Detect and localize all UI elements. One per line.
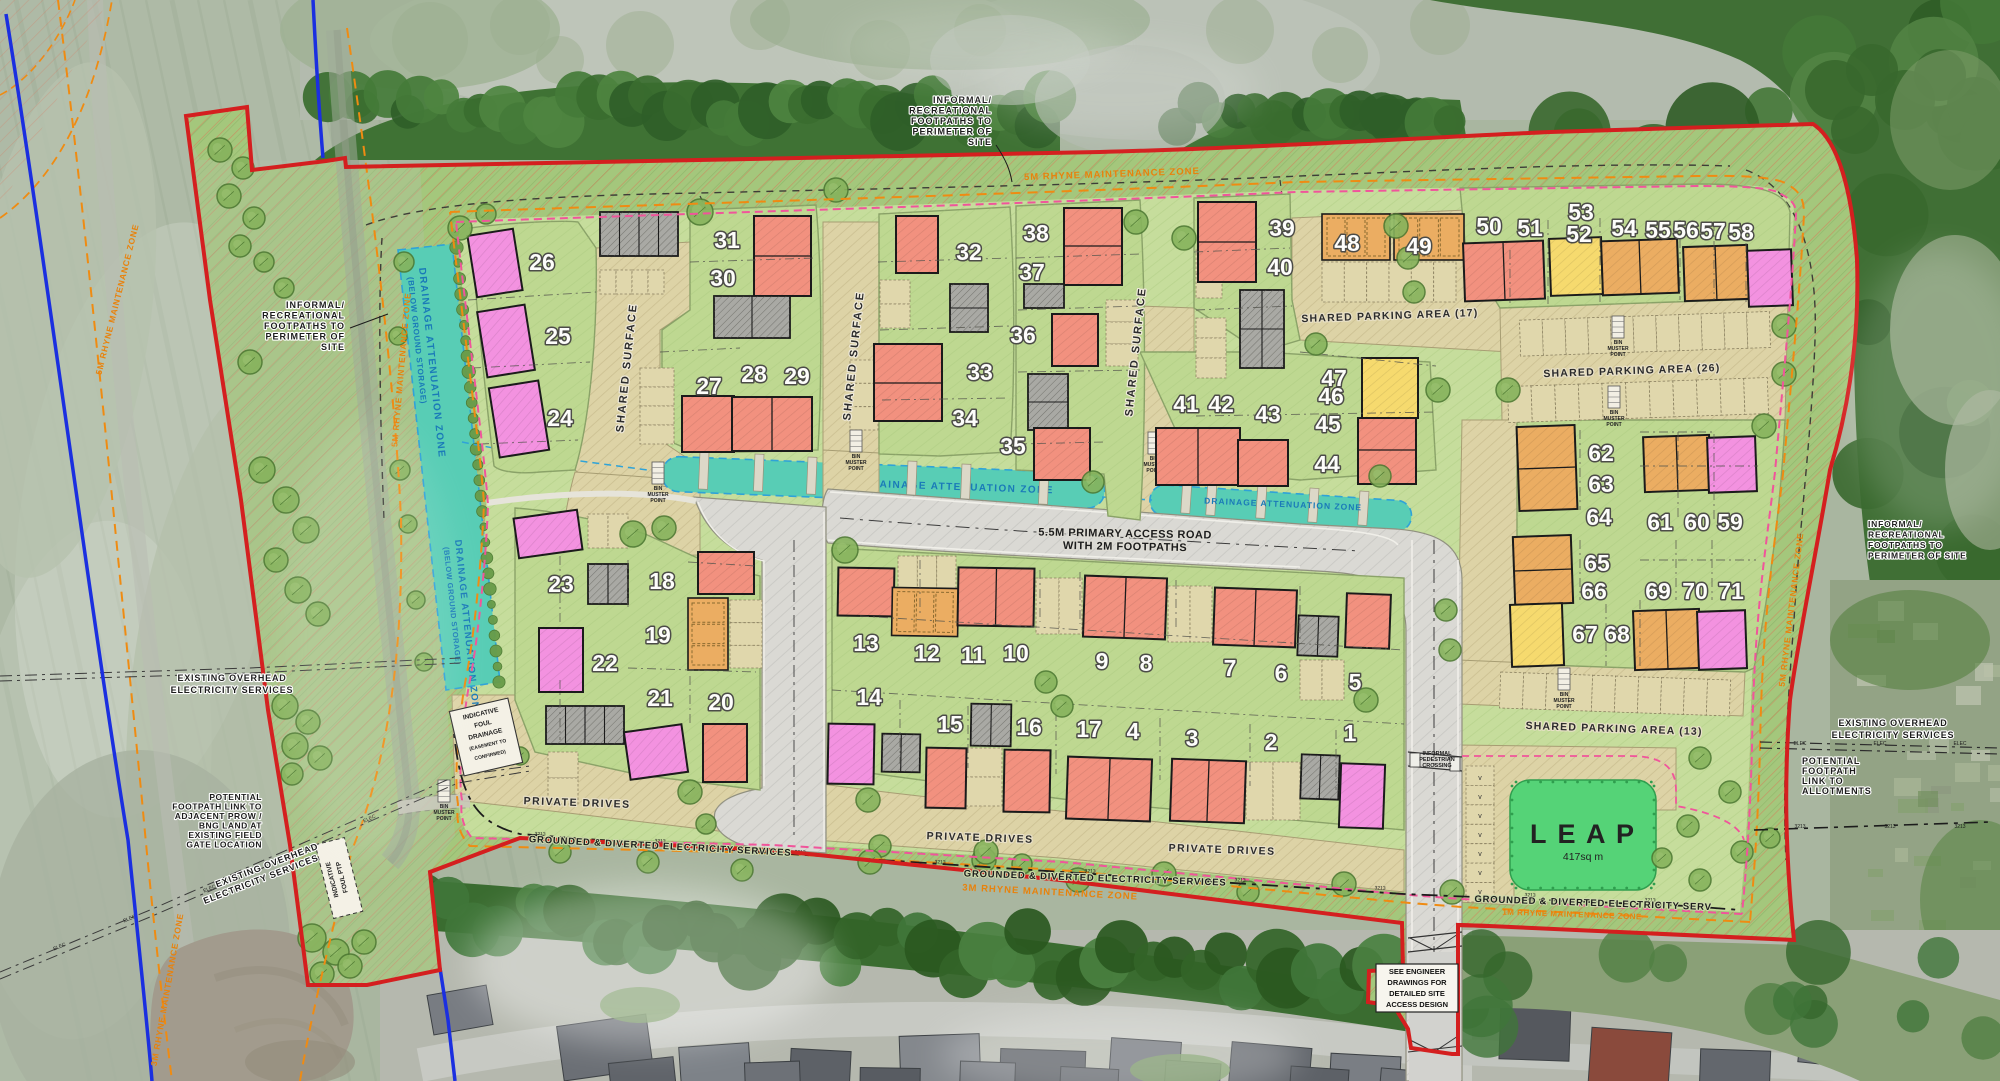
svg-text:32: 32: [956, 239, 982, 265]
svg-text:PERIMETER OF: PERIMETER OF: [912, 127, 992, 137]
svg-text:16: 16: [1016, 714, 1042, 740]
svg-text:ACCESS DESIGN: ACCESS DESIGN: [1386, 1000, 1448, 1009]
svg-text:3: 3: [1186, 725, 1199, 751]
svg-text:18: 18: [649, 568, 675, 594]
svg-text:INFORMAL/: INFORMAL/: [286, 300, 345, 310]
svg-text:43: 43: [1255, 401, 1281, 427]
svg-text:50: 50: [1476, 213, 1502, 239]
svg-text:v: v: [1478, 832, 1482, 839]
svg-text:54: 54: [1611, 215, 1637, 241]
svg-text:6: 6: [1275, 660, 1288, 686]
svg-text:7: 7: [1224, 655, 1237, 681]
svg-text:ELEC: ELEC: [1793, 741, 1806, 747]
svg-text:POINT: POINT: [848, 466, 863, 472]
svg-text:15: 15: [937, 711, 963, 737]
svg-text:4: 4: [1127, 718, 1140, 744]
svg-text:3213: 3213: [1794, 824, 1805, 830]
svg-text:46: 46: [1318, 383, 1344, 409]
svg-text:ADJACENT PROW /: ADJACENT PROW /: [175, 811, 262, 821]
svg-text:WITH 2M FOOTPATHS: WITH 2M FOOTPATHS: [1063, 540, 1187, 554]
svg-text:27: 27: [696, 373, 722, 399]
svg-text:v: v: [1478, 813, 1482, 820]
svg-text:39: 39: [1269, 215, 1295, 241]
svg-text:61: 61: [1647, 509, 1673, 535]
svg-text:51: 51: [1517, 215, 1543, 241]
svg-text:RECREATIONAL: RECREATIONAL: [262, 311, 345, 321]
svg-text:62: 62: [1588, 440, 1614, 466]
svg-text:64: 64: [1586, 504, 1612, 530]
svg-text:ALLOTMENTS: ALLOTMENTS: [1802, 786, 1872, 796]
svg-text:DRAWINGS FOR: DRAWINGS FOR: [1387, 978, 1447, 987]
svg-text:71: 71: [1718, 578, 1744, 604]
svg-text:ELEC: ELEC: [1873, 741, 1886, 747]
svg-text:70: 70: [1682, 578, 1708, 604]
svg-text:31: 31: [714, 227, 740, 253]
svg-text:28: 28: [741, 361, 767, 387]
svg-text:8: 8: [1140, 650, 1153, 676]
svg-text:57: 57: [1700, 218, 1726, 244]
svg-text:19: 19: [645, 622, 671, 648]
svg-text:RECREATIONAL: RECREATIONAL: [909, 106, 992, 116]
svg-text:FOOTPATH LINK TO: FOOTPATH LINK TO: [172, 802, 262, 812]
svg-text:20: 20: [708, 689, 734, 715]
svg-text:42: 42: [1208, 391, 1234, 417]
svg-text:40: 40: [1267, 254, 1293, 280]
svg-text:10: 10: [1003, 640, 1029, 666]
svg-text:CROSSING: CROSSING: [1422, 763, 1451, 769]
svg-text:ELECTRICITY SERVICES: ELECTRICITY SERVICES: [171, 685, 294, 695]
svg-text:60: 60: [1684, 509, 1710, 535]
svg-text:1: 1: [1344, 720, 1357, 746]
svg-text:v: v: [1478, 794, 1482, 801]
svg-text:69: 69: [1645, 578, 1671, 604]
svg-text:26: 26: [529, 249, 555, 275]
svg-text:3213: 3213: [1954, 824, 1965, 830]
svg-text:SITE: SITE: [968, 137, 992, 147]
svg-text:SEE ENGINEER: SEE ENGINEER: [1389, 967, 1446, 976]
svg-text:v: v: [1478, 851, 1482, 858]
svg-text:68: 68: [1604, 621, 1630, 647]
svg-text:49: 49: [1406, 233, 1432, 259]
svg-text:PERIMETER OF: PERIMETER OF: [265, 332, 345, 342]
svg-text:ELECTRICITY SERVICES: ELECTRICITY SERVICES: [1832, 730, 1955, 740]
svg-text:36: 36: [1010, 322, 1036, 348]
svg-text:63: 63: [1588, 471, 1614, 497]
svg-text:FOOTPATH: FOOTPATH: [1802, 766, 1857, 776]
svg-text:SITE: SITE: [321, 342, 345, 352]
svg-text:45: 45: [1315, 411, 1341, 437]
svg-text:v: v: [1478, 870, 1482, 877]
svg-text:3213: 3213: [1374, 885, 1386, 892]
svg-text:3213: 3213: [1884, 824, 1895, 830]
svg-text:55: 55: [1645, 217, 1671, 243]
svg-text:22: 22: [592, 650, 618, 676]
svg-text:2: 2: [1265, 729, 1278, 755]
svg-text:EXISTING FIELD: EXISTING FIELD: [188, 830, 262, 840]
svg-text:33: 33: [967, 359, 993, 385]
svg-text:38: 38: [1023, 220, 1049, 246]
svg-text:POINT: POINT: [1606, 422, 1621, 428]
svg-text:EXISTING OVERHEAD: EXISTING OVERHEAD: [1838, 718, 1947, 728]
svg-text:POTENTIAL: POTENTIAL: [1802, 756, 1860, 766]
svg-text:DETAILED SITE: DETAILED SITE: [1389, 989, 1445, 998]
svg-text:65: 65: [1584, 550, 1610, 576]
svg-text:35: 35: [1000, 433, 1026, 459]
svg-text:FOOTPATHS TO: FOOTPATHS TO: [911, 116, 992, 126]
svg-text:58: 58: [1728, 219, 1754, 245]
svg-text:23: 23: [548, 571, 574, 597]
svg-text:LINK TO: LINK TO: [1802, 776, 1843, 786]
svg-text:FOOTPATHS TO: FOOTPATHS TO: [1868, 540, 1943, 550]
svg-text:52: 52: [1566, 221, 1592, 247]
svg-text:9: 9: [1096, 648, 1109, 674]
svg-text:13: 13: [853, 630, 879, 656]
svg-text:POINT: POINT: [1610, 352, 1625, 358]
svg-text:ELEC: ELEC: [1953, 741, 1966, 747]
svg-text:17: 17: [1076, 716, 1102, 742]
svg-text:56: 56: [1673, 217, 1699, 243]
svg-text:3213: 3213: [934, 859, 946, 866]
svg-text:5: 5: [1349, 669, 1362, 695]
svg-text:67: 67: [1572, 621, 1598, 647]
svg-text:EXISTING OVERHEAD: EXISTING OVERHEAD: [177, 673, 286, 683]
svg-text:48: 48: [1334, 230, 1360, 256]
svg-text:11: 11: [961, 642, 986, 668]
svg-text:30: 30: [710, 265, 736, 291]
svg-text:GATE LOCATION: GATE LOCATION: [186, 840, 262, 850]
svg-text:L E A P: L E A P: [1530, 819, 1636, 849]
svg-text:POINT: POINT: [1556, 704, 1571, 710]
svg-text:29: 29: [784, 363, 810, 389]
svg-text:FOOTPATHS TO: FOOTPATHS TO: [264, 321, 345, 331]
svg-text:59: 59: [1717, 509, 1743, 535]
svg-text:37: 37: [1019, 259, 1045, 285]
svg-text:66: 66: [1581, 578, 1607, 604]
svg-text:POTENTIAL: POTENTIAL: [209, 792, 262, 802]
svg-text:3213: 3213: [1234, 877, 1246, 884]
svg-text:44: 44: [1314, 451, 1340, 477]
svg-text:RECREATIONAL: RECREATIONAL: [1868, 530, 1945, 540]
svg-text:14: 14: [856, 684, 882, 710]
svg-text:POINT: POINT: [650, 498, 665, 504]
svg-text:PERIMETER OF SITE: PERIMETER OF SITE: [1868, 551, 1967, 561]
svg-text:BNG LAND AT: BNG LAND AT: [199, 821, 262, 831]
svg-text:25: 25: [545, 323, 571, 349]
svg-text:v: v: [1478, 775, 1482, 782]
svg-text:41: 41: [1173, 391, 1199, 417]
svg-text:417sq m: 417sq m: [1563, 851, 1604, 863]
svg-text:34: 34: [952, 405, 978, 431]
svg-text:12: 12: [914, 640, 940, 666]
svg-text:24: 24: [547, 405, 573, 431]
svg-text:21: 21: [647, 685, 673, 711]
svg-text:POINT: POINT: [436, 816, 451, 822]
